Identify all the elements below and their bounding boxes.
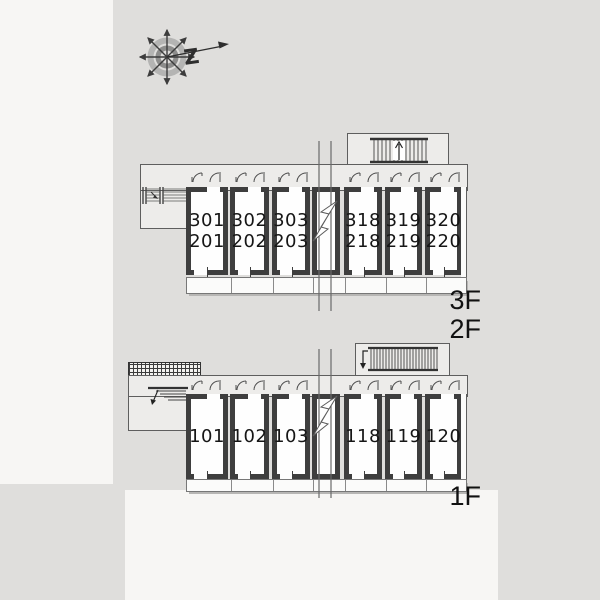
room-102: 102	[230, 394, 269, 479]
room-319-219: 319 219	[385, 187, 422, 275]
door-gap	[441, 187, 454, 192]
room-number: 119	[386, 426, 422, 447]
room-number: 301 201	[189, 210, 225, 252]
door-gap	[207, 187, 220, 192]
stairs-icon	[141, 184, 189, 207]
room-number: 120	[426, 426, 462, 447]
door-swing-icon	[345, 169, 385, 186]
door-swing-icon	[426, 377, 466, 394]
door-swing-icon	[274, 377, 314, 394]
window-gap	[433, 270, 444, 275]
room-number: 303 203	[273, 210, 309, 252]
door-swing-icon	[231, 377, 271, 394]
room-partial-upper	[312, 187, 340, 275]
door-swing-icon	[274, 169, 314, 186]
door-swing-icon	[187, 377, 227, 394]
room-number: 302 202	[232, 210, 268, 252]
door-swing-icon	[386, 377, 426, 394]
room-119: 119	[385, 394, 422, 479]
room-number: 318 218	[345, 210, 381, 252]
paper-margin-left	[0, 0, 113, 484]
window-gap	[280, 270, 292, 275]
room-number: 101	[189, 426, 225, 447]
window-gap	[352, 270, 364, 275]
room-118: 118	[344, 394, 382, 479]
stairs-icon	[358, 346, 444, 372]
stairs-icon	[146, 386, 190, 406]
floorplan-canvas: Z 301 201	[0, 0, 600, 600]
door-gap	[361, 394, 374, 399]
stairs-icon	[369, 137, 429, 164]
compass-rose-icon: Z	[133, 20, 238, 95]
door-gap	[207, 394, 220, 399]
room-number: 118	[345, 426, 381, 447]
door-gap	[361, 187, 374, 192]
room-303-203: 303 203	[272, 187, 310, 275]
room-number: 320 220	[426, 210, 462, 252]
door-gap	[248, 187, 261, 192]
room-101: 101	[186, 394, 228, 479]
door-swing-icon	[386, 169, 426, 186]
room-103: 103	[272, 394, 310, 479]
north-letter: Z	[182, 44, 200, 70]
north-pointer-arrowhead	[218, 42, 229, 49]
room-partial-lower	[312, 394, 340, 479]
door-gap	[441, 394, 454, 399]
window-gap	[194, 270, 207, 275]
building-right-edge	[461, 187, 467, 277]
floor-label-upper: 3F 2F	[406, 286, 481, 344]
door-gap	[289, 394, 302, 399]
room-number: 103	[273, 426, 309, 447]
door-gap	[248, 394, 261, 399]
door-swing-icon	[426, 169, 466, 186]
door-swing-icon	[231, 169, 271, 186]
room-318-218: 318 218	[344, 187, 382, 275]
door-gap	[401, 187, 414, 192]
room-number: 102	[232, 426, 268, 447]
room-302-202: 302 202	[230, 187, 269, 275]
room-320-220: 320 220	[425, 187, 462, 275]
building-right-edge	[461, 394, 467, 479]
door-gap	[401, 394, 414, 399]
door-swing-icon	[187, 169, 227, 186]
window-gap	[238, 270, 250, 275]
door-gap	[289, 187, 302, 192]
room-301-201: 301 201	[186, 187, 228, 275]
floor-label-lower: 1F	[406, 482, 481, 511]
room-number: 319 219	[386, 210, 422, 252]
room-120: 120	[425, 394, 462, 479]
window-gap	[393, 270, 404, 275]
door-swing-icon	[345, 377, 385, 394]
